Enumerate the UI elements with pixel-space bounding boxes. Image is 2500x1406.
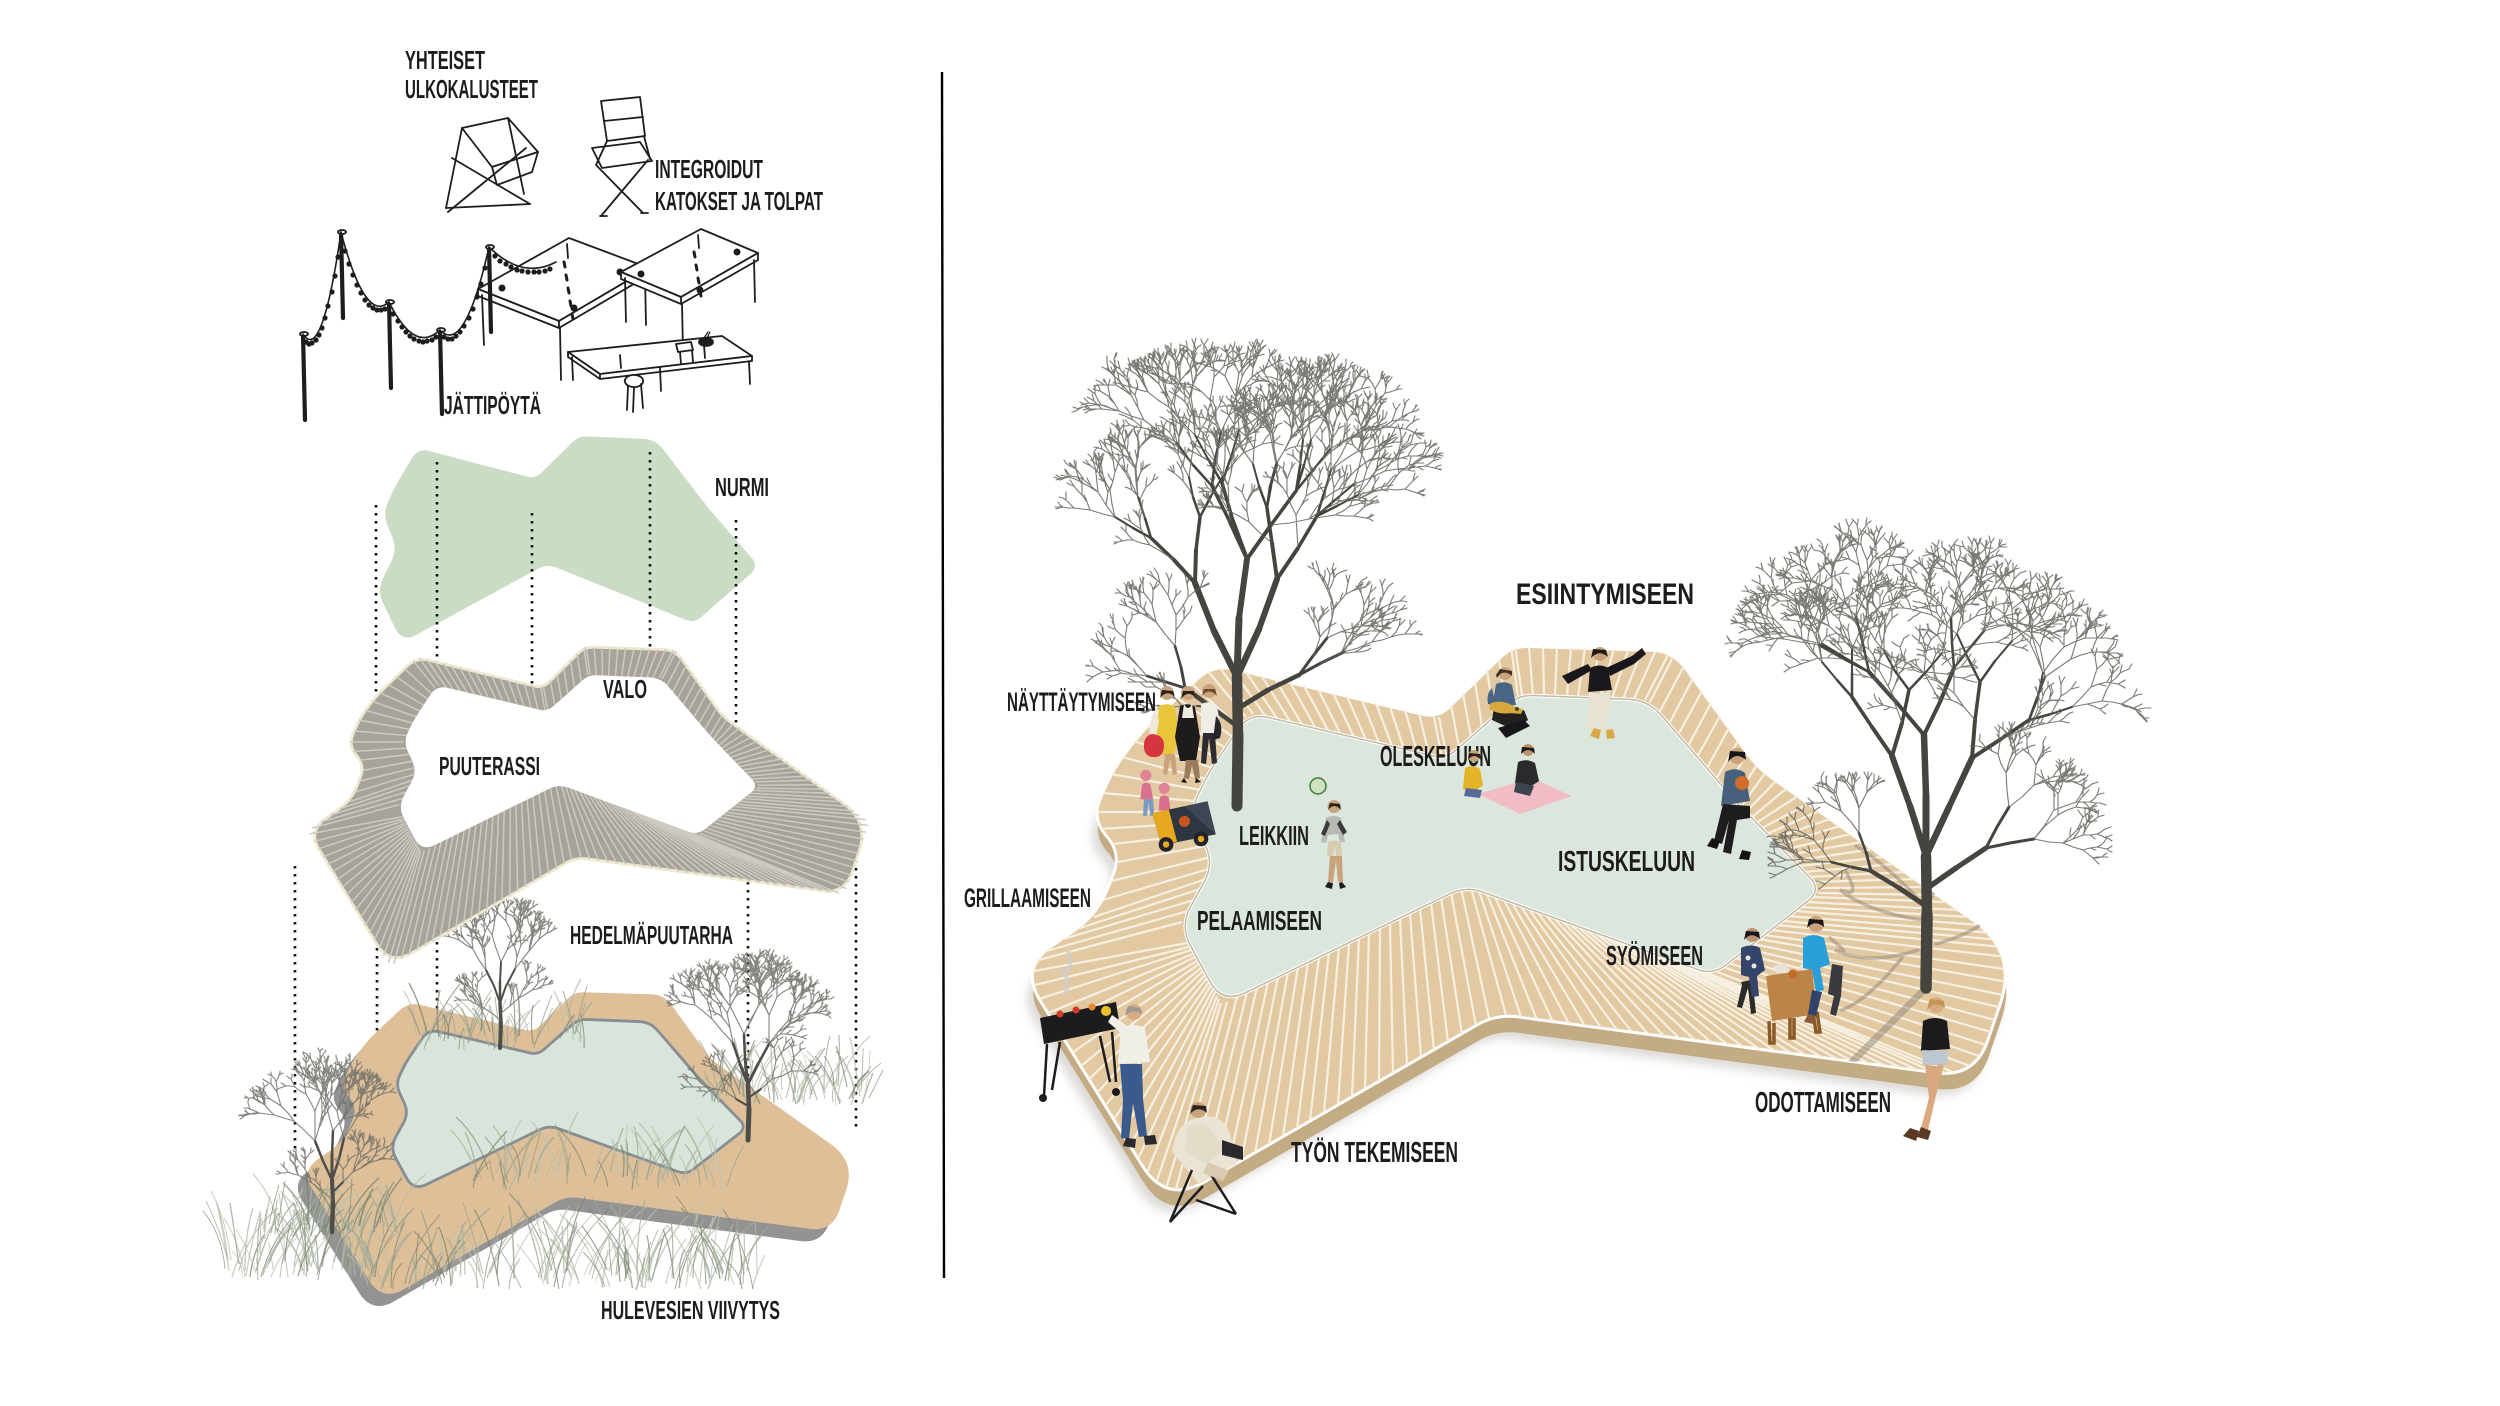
svg-text:ESIINTYMISEEN: ESIINTYMISEEN xyxy=(1516,578,1694,611)
svg-text:NÄYTTÄYTYMISEEN: NÄYTTÄYTYMISEEN xyxy=(1007,687,1156,717)
svg-text:KATOKSET JA TOLPAT: KATOKSET JA TOLPAT xyxy=(655,186,823,216)
svg-text:PUUTERASSI: PUUTERASSI xyxy=(439,751,540,781)
svg-text:PELAAMISEEN: PELAAMISEEN xyxy=(1197,905,1322,936)
svg-text:ULKOKALUSTEET: ULKOKALUSTEET xyxy=(405,74,538,104)
svg-text:JÄTTIPÖYTÄ: JÄTTIPÖYTÄ xyxy=(444,390,541,420)
svg-text:ISTUSKELUUN: ISTUSKELUUN xyxy=(1558,846,1695,878)
svg-text:SYÖMISEEN: SYÖMISEEN xyxy=(1606,940,1703,971)
svg-text:LEIKKIIN: LEIKKIIN xyxy=(1239,820,1309,851)
svg-text:HULEVESIEN VIIVYTYS: HULEVESIEN VIIVYTYS xyxy=(601,1295,780,1325)
svg-text:NURMI: NURMI xyxy=(715,472,769,502)
svg-text:GRILLAAMISEEN: GRILLAAMISEEN xyxy=(964,883,1091,913)
svg-text:VALO: VALO xyxy=(603,674,647,704)
svg-text:TYÖN TEKEMISEEN: TYÖN TEKEMISEEN xyxy=(1291,1136,1458,1169)
svg-text:YHTEISET: YHTEISET xyxy=(405,45,485,75)
svg-text:INTEGROIDUT: INTEGROIDUT xyxy=(655,154,763,184)
svg-text:HEDELMÄPUUTARHA: HEDELMÄPUUTARHA xyxy=(570,920,733,950)
svg-text:ODOTTAMISEEN: ODOTTAMISEEN xyxy=(1755,1087,1891,1119)
